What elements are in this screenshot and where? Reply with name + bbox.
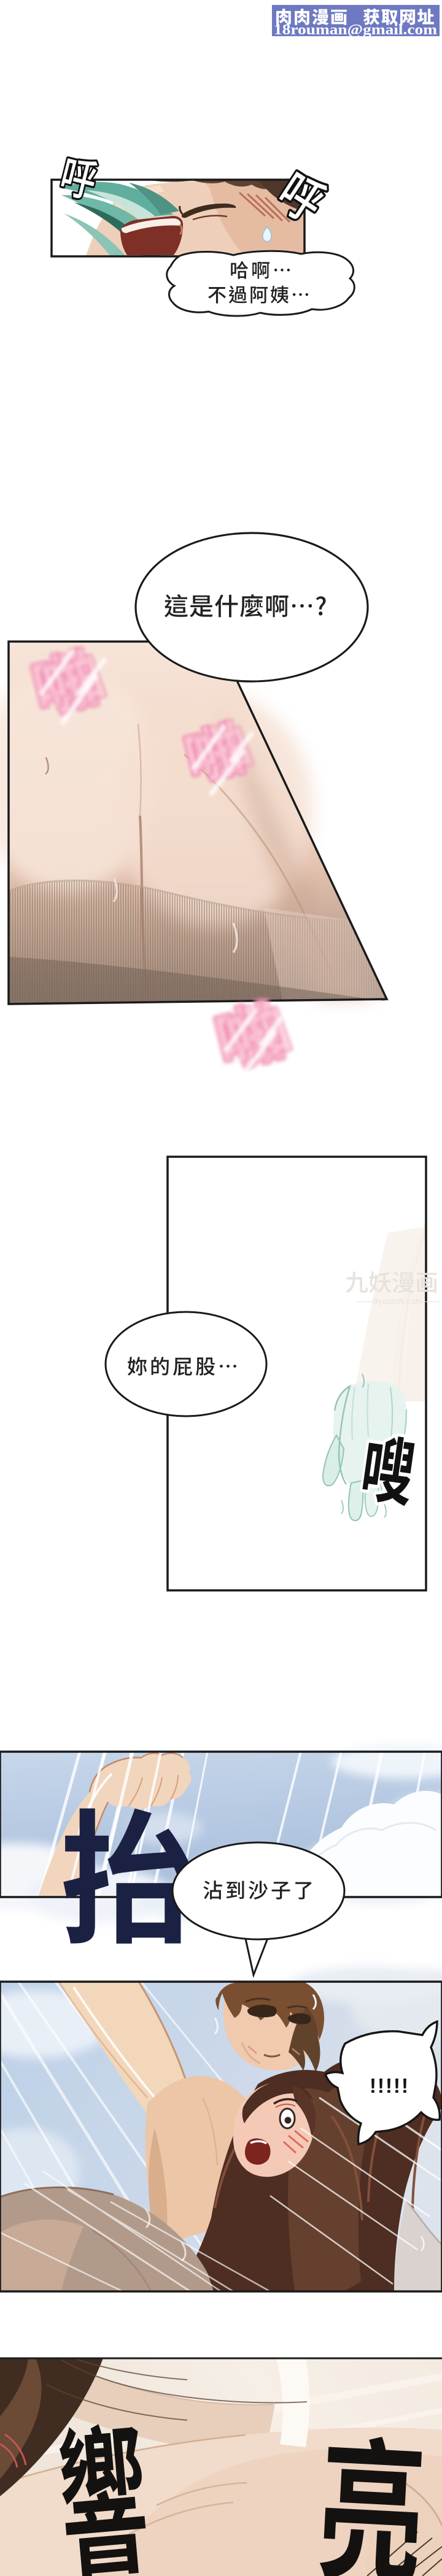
svg-text:!!!!!: !!!!! <box>370 2074 409 2097</box>
svg-text:18rouman@gmail.com: 18rouman@gmail.com <box>274 22 437 38</box>
svg-text:——9yaomh.com——: ——9yaomh.com—— <box>356 1296 440 1306</box>
